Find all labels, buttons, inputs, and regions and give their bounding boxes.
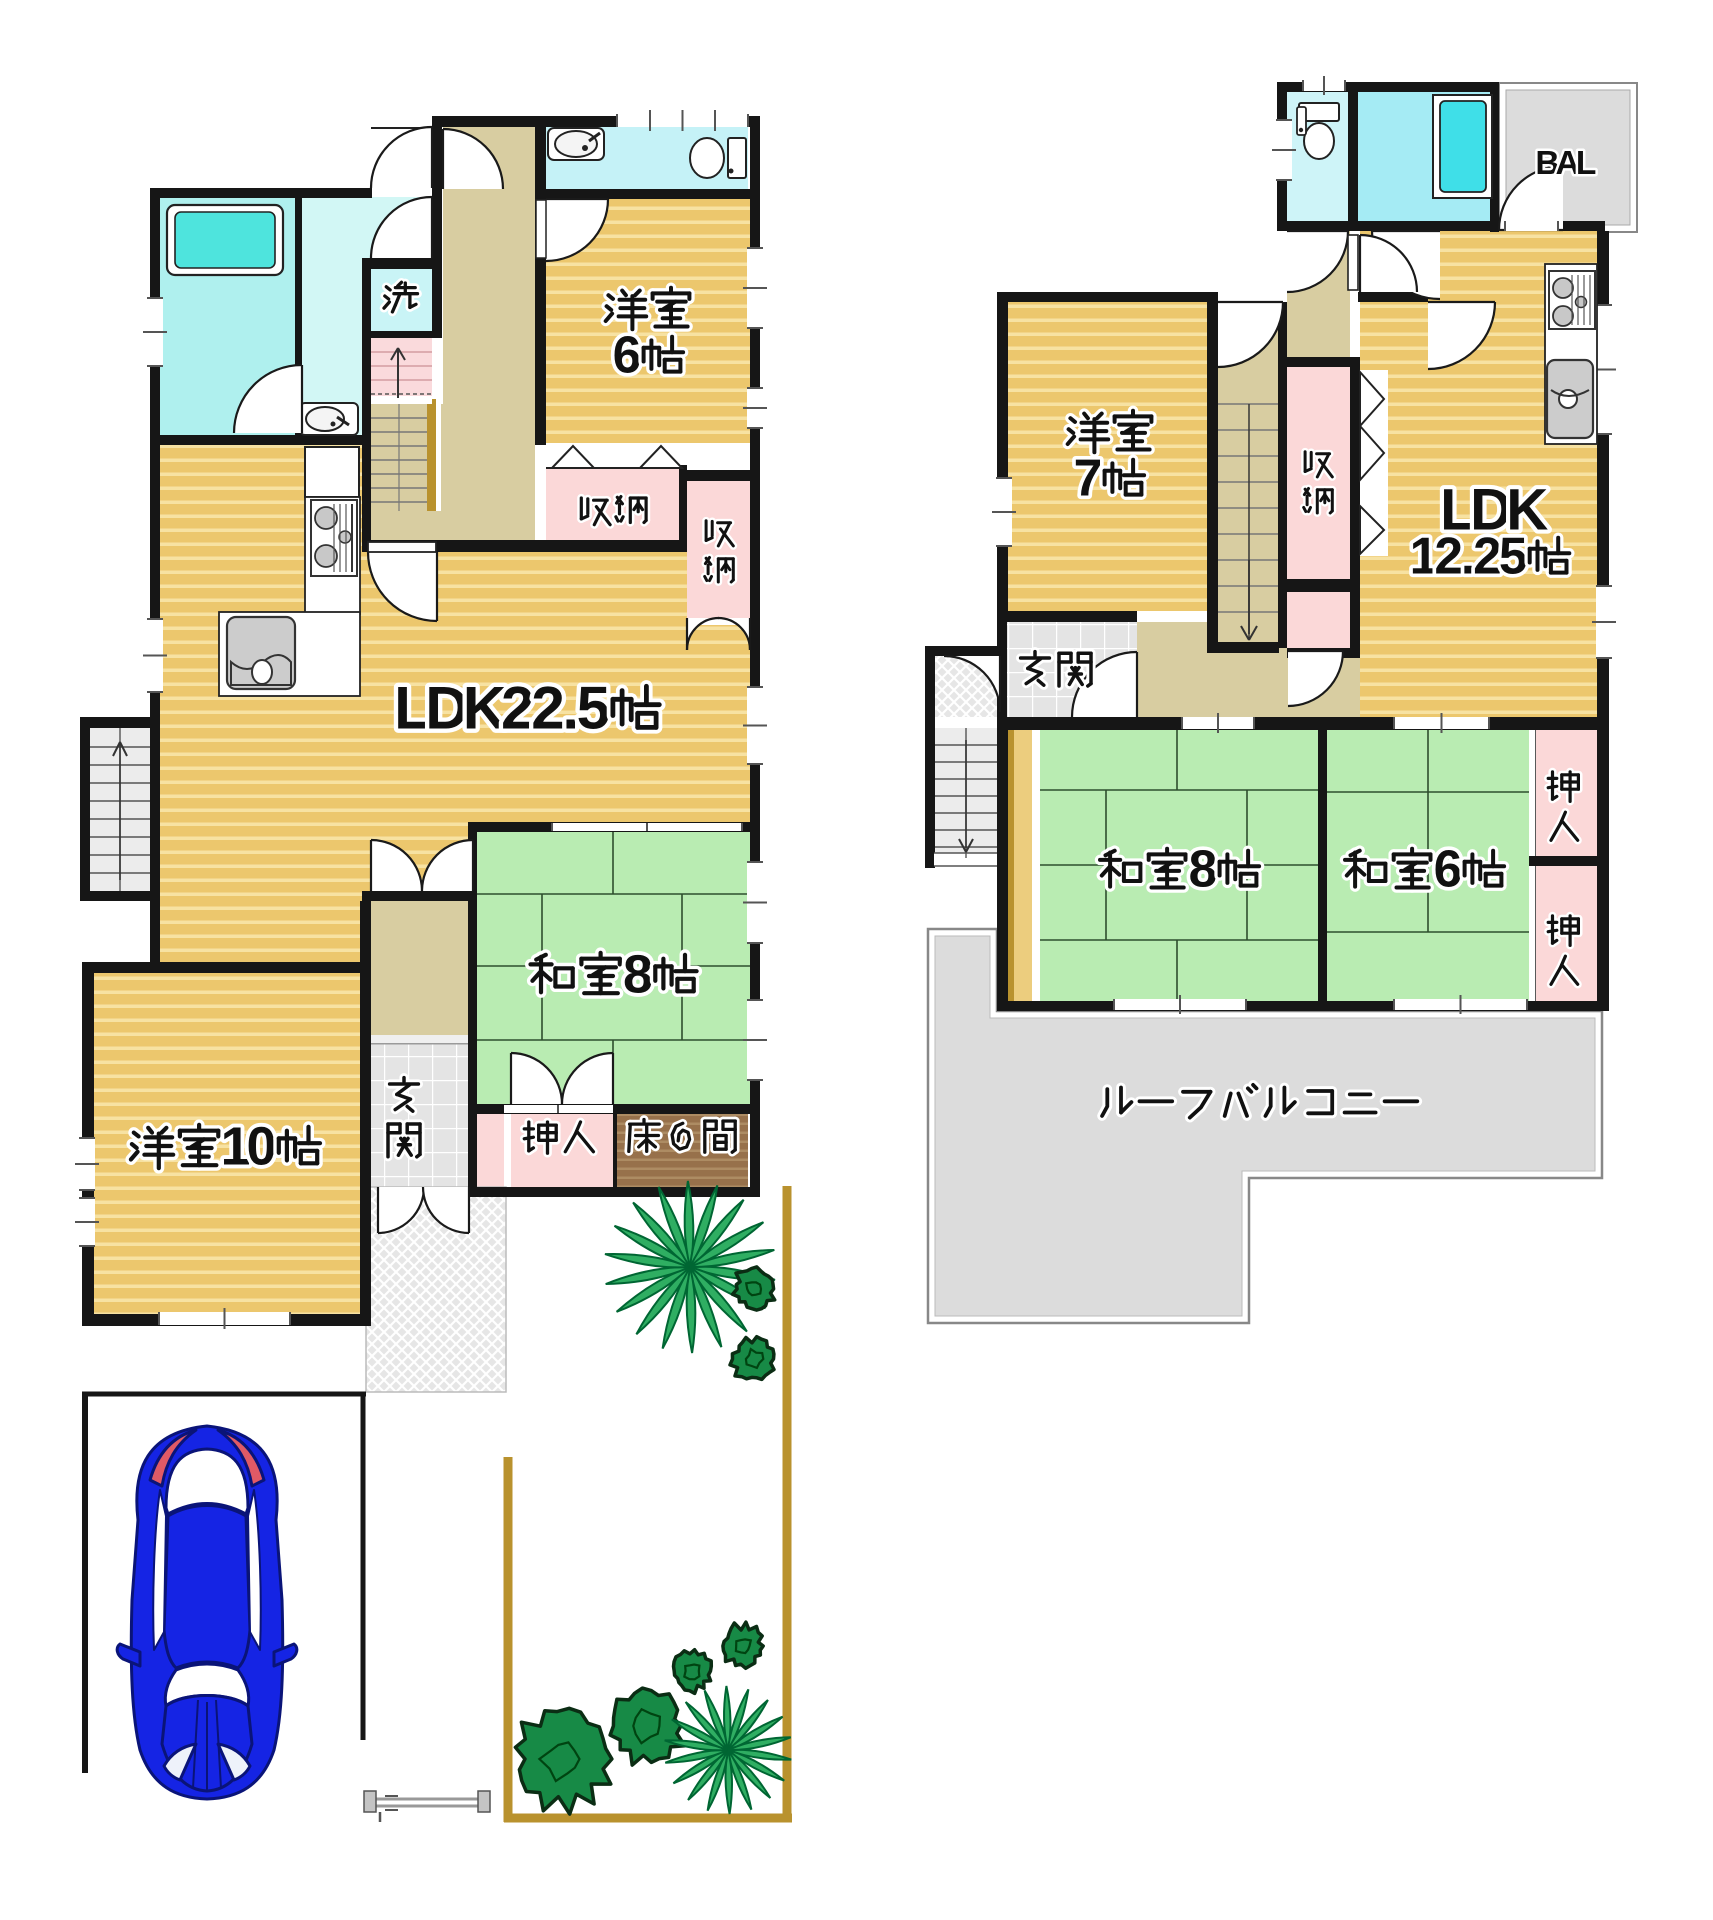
svg-text:L: L — [1576, 145, 1597, 182]
svg-text:2: 2 — [501, 673, 535, 741]
svg-text:2: 2 — [1434, 527, 1463, 585]
svg-text:2: 2 — [531, 673, 565, 741]
svg-text:7: 7 — [1074, 449, 1103, 507]
svg-text:2: 2 — [1473, 527, 1502, 585]
svg-text:5: 5 — [577, 673, 611, 741]
svg-text:6: 6 — [613, 326, 642, 384]
svg-text:8: 8 — [1189, 840, 1218, 898]
svg-text:8: 8 — [623, 944, 653, 1004]
svg-text:0: 0 — [247, 1116, 277, 1176]
svg-text:6: 6 — [1434, 840, 1463, 898]
svg-text:5: 5 — [1499, 527, 1528, 585]
